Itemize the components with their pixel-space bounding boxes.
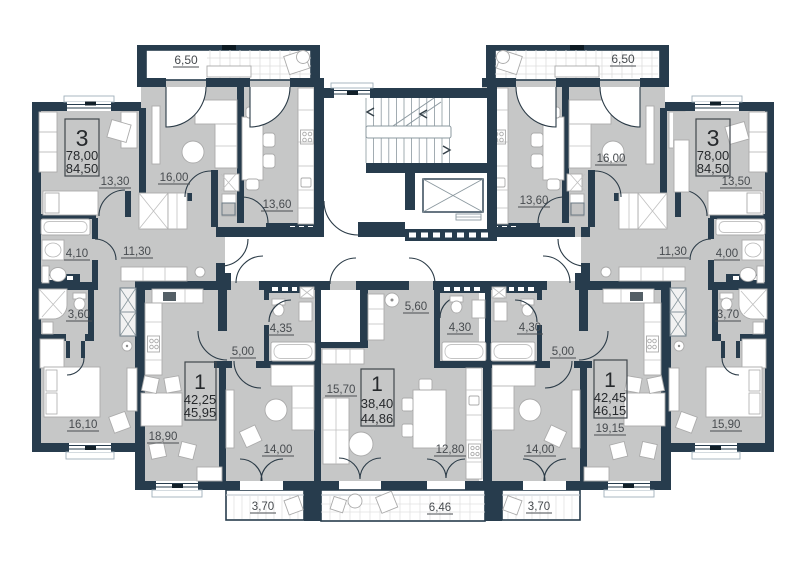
svg-text:11,30: 11,30: [659, 246, 687, 258]
svg-text:4,10: 4,10: [66, 248, 88, 260]
svg-text:5,00: 5,00: [232, 346, 254, 358]
svg-text:11,30: 11,30: [123, 246, 151, 258]
svg-text:12,80: 12,80: [436, 444, 465, 456]
svg-text:3,70: 3,70: [717, 309, 739, 321]
svg-text:46,15: 46,15: [594, 403, 627, 418]
svg-text:13,50: 13,50: [722, 176, 751, 188]
svg-text:4,30: 4,30: [449, 322, 471, 334]
svg-text:1: 1: [604, 369, 616, 392]
svg-text:13,30: 13,30: [101, 176, 130, 188]
svg-text:19,15: 19,15: [596, 423, 625, 435]
svg-text:5,00: 5,00: [552, 346, 574, 358]
svg-text:45,95: 45,95: [184, 405, 217, 420]
svg-text:6,50: 6,50: [611, 52, 635, 66]
svg-text:16,00: 16,00: [597, 153, 626, 165]
svg-text:13,60: 13,60: [520, 195, 549, 207]
svg-text:5,60: 5,60: [405, 301, 427, 313]
svg-text:4,00: 4,00: [716, 248, 738, 260]
svg-text:15,90: 15,90: [712, 419, 741, 431]
svg-text:16,10: 16,10: [69, 419, 98, 431]
svg-text:18,90: 18,90: [149, 431, 178, 443]
svg-text:6,46: 6,46: [429, 502, 451, 514]
svg-text:84,50: 84,50: [66, 161, 99, 176]
svg-text:38,40: 38,40: [361, 396, 394, 411]
svg-text:14,00: 14,00: [526, 444, 555, 456]
svg-text:3,70: 3,70: [528, 501, 550, 513]
svg-text:84,50: 84,50: [697, 161, 730, 176]
svg-text:4,35: 4,35: [270, 323, 292, 335]
svg-text:3,70: 3,70: [252, 501, 274, 513]
svg-text:1: 1: [194, 371, 206, 394]
svg-text:14,00: 14,00: [264, 444, 293, 456]
svg-text:16,00: 16,00: [160, 172, 189, 184]
svg-text:1: 1: [371, 373, 383, 396]
svg-text:44,86: 44,86: [361, 411, 394, 426]
svg-text:15,70: 15,70: [327, 384, 356, 396]
svg-text:4,30: 4,30: [519, 322, 541, 334]
svg-text:6,50: 6,50: [174, 53, 198, 67]
svg-text:3,60: 3,60: [68, 309, 90, 321]
svg-text:13,60: 13,60: [263, 199, 292, 211]
